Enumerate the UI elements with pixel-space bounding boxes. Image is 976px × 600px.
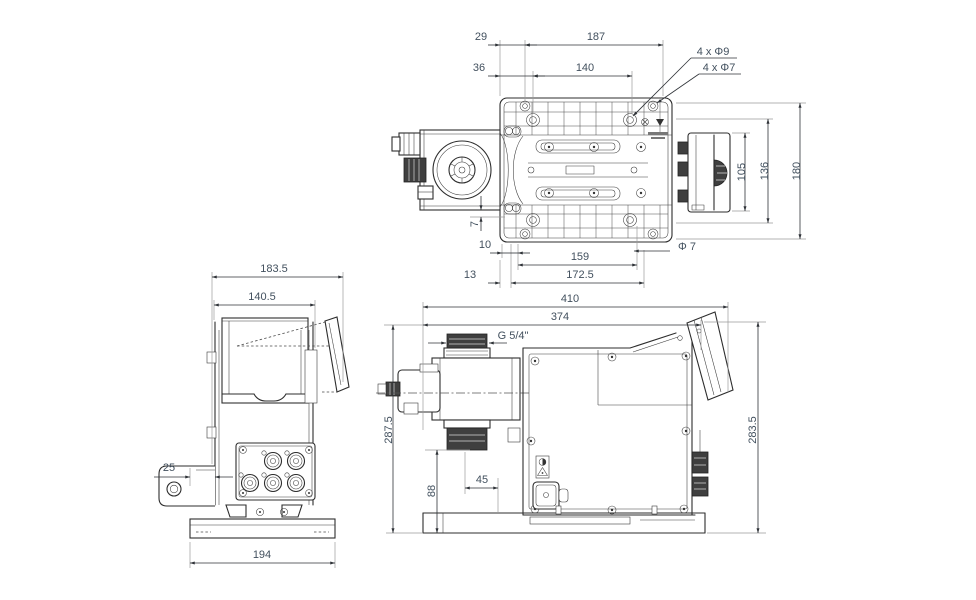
dim-label-29: 29 xyxy=(475,31,487,43)
front-view: 183.5 140.5 25 194 xyxy=(154,263,349,568)
dim-label-159: 159 xyxy=(571,251,589,263)
rear-connectors xyxy=(692,430,708,496)
base-plate-side xyxy=(423,506,705,533)
plate-screws xyxy=(528,143,646,198)
rib-grid-bottom xyxy=(516,205,660,238)
pump-dimensional-drawing: 29 187 36 140 4 x Φ9 4 x Φ7 xyxy=(0,0,976,600)
top-cover xyxy=(222,318,308,403)
dim-label-88: 88 xyxy=(426,485,438,497)
drain-plate xyxy=(533,482,568,509)
molded-marks xyxy=(642,119,669,140)
control-unit-top xyxy=(678,133,730,212)
rib-grid-top xyxy=(516,102,660,135)
pump-head-side xyxy=(376,334,530,450)
dim-label-140: 140 xyxy=(576,62,594,74)
dim-label-140-5: 140.5 xyxy=(248,291,276,303)
tilted-cover-front xyxy=(322,317,349,392)
dim-label-7: 7 xyxy=(469,221,481,227)
dim-label-45: 45 xyxy=(476,474,488,486)
edge-slots xyxy=(504,126,521,214)
callout-4xphi9: 4 x Φ9 xyxy=(697,46,730,58)
dim-label-105: 105 xyxy=(736,163,748,181)
dim-label-187: 187 xyxy=(587,31,605,43)
dim-label-410: 410 xyxy=(561,293,579,305)
dim-label-25: 25 xyxy=(163,462,175,474)
thread-callout: G 5/4" xyxy=(498,330,529,342)
dim-label-194: 194 xyxy=(253,549,271,561)
dim-label-287-5: 287.5 xyxy=(383,416,395,444)
corner-holes-phi7 xyxy=(520,101,658,239)
motor-top xyxy=(392,130,500,210)
dim-label-36: 36 xyxy=(473,62,485,74)
top-view: 29 187 36 140 4 x Φ9 4 x Φ7 xyxy=(392,31,806,288)
callout-4xphi7: 4 x Φ7 xyxy=(703,62,736,74)
connector-panel xyxy=(236,443,315,500)
dim-label-283-5: 283.5 xyxy=(747,416,759,444)
dim-label-10: 10 xyxy=(479,239,491,251)
terminal-box xyxy=(378,364,440,414)
dim-label-13: 13 xyxy=(464,269,476,281)
side-view: 410 374 G 5/4" 287.5 88 45 283. xyxy=(376,293,766,533)
technical-drawing-page: 29 187 36 140 4 x Φ9 4 x Φ7 xyxy=(0,0,976,600)
warning-label xyxy=(536,456,549,478)
discharge-valve xyxy=(447,334,487,349)
dim-label-172-5: 172.5 xyxy=(566,269,594,281)
mounting-holes-phi9 xyxy=(527,114,637,227)
dosing-head xyxy=(432,358,520,420)
dim-label-374: 374 xyxy=(551,311,569,323)
dim-label-136: 136 xyxy=(759,162,771,180)
dim-label-183-5: 183.5 xyxy=(260,263,288,275)
main-housing-side xyxy=(523,312,733,515)
callout-phi7-bottom: Φ 7 xyxy=(678,241,696,253)
dim-label-180: 180 xyxy=(791,162,803,180)
suction-valve xyxy=(447,428,487,450)
base-front xyxy=(190,505,335,538)
base-plate-front xyxy=(190,519,335,538)
mounting-plate xyxy=(500,98,672,242)
dimensions-top-view: 29 187 36 140 4 x Φ9 4 x Φ7 xyxy=(464,31,806,288)
side-strip xyxy=(305,350,317,403)
